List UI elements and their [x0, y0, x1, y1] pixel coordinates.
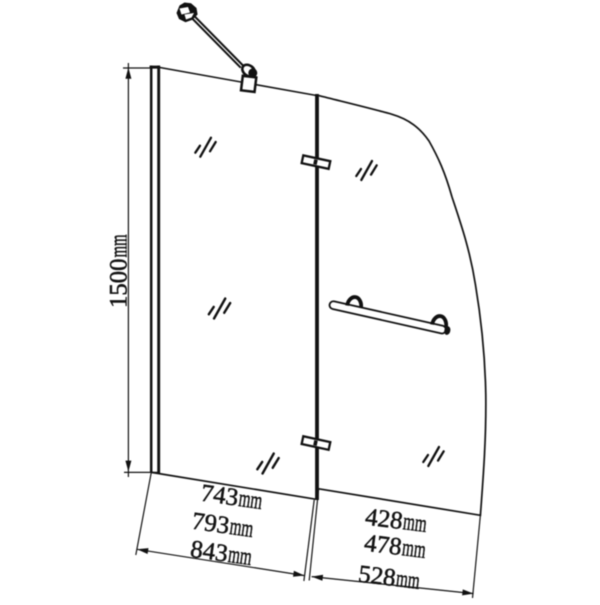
svg-text:478: 478: [363, 530, 404, 561]
svg-text:793: 793: [190, 508, 231, 540]
svg-text:528: 528: [357, 561, 398, 592]
svg-text:mm: mm: [226, 541, 253, 571]
svg-text:mm: mm: [402, 508, 429, 538]
svg-text:mm: mm: [395, 565, 422, 595]
svg-text:mm: mm: [106, 234, 133, 257]
svg-text:mm: mm: [228, 513, 255, 543]
svg-text:mm: mm: [401, 534, 428, 564]
svg-text:mm: mm: [237, 485, 264, 515]
svg-text:743: 743: [199, 480, 240, 512]
svg-text:1500: 1500: [106, 259, 133, 309]
svg-text:843: 843: [189, 536, 230, 568]
